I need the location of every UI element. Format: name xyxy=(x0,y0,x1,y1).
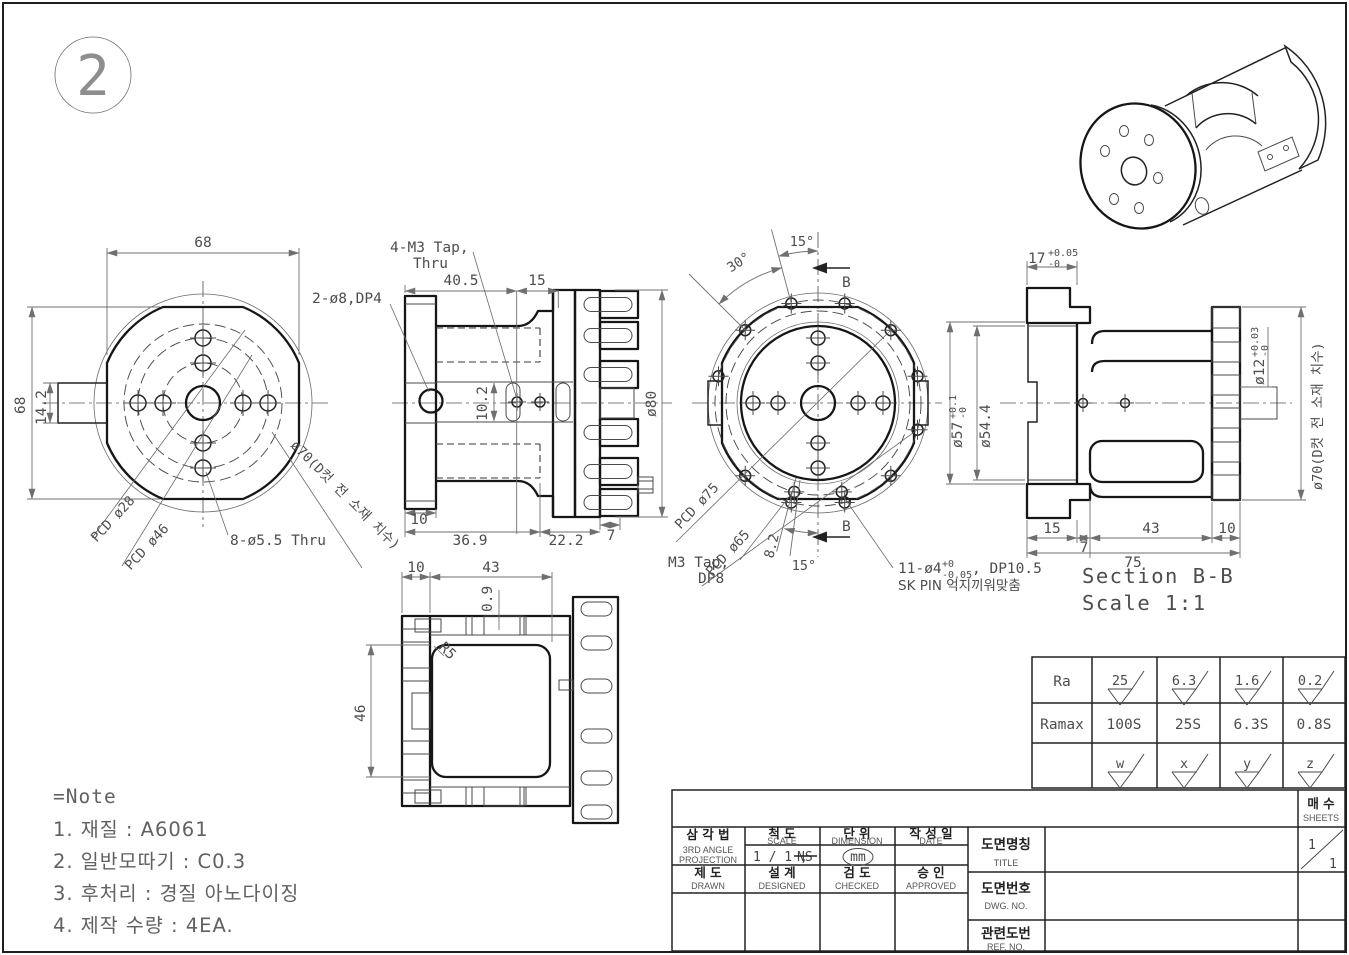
roughness-ra-label: Ra xyxy=(1053,674,1070,690)
tb-dwg-kr: 도면번호 xyxy=(981,880,1031,897)
dim-43-bv: 43 xyxy=(482,560,499,576)
tb-projection-en2: PROJECTION xyxy=(679,855,737,865)
label-pin-tol-up: +0 xyxy=(942,559,954,570)
dim-d12-group: ø12 +0.03 -0 xyxy=(1250,327,1271,387)
roughness-ramax-4: 0.8S xyxy=(1297,717,1332,733)
left-view: 68 68 14.2 PCD ø28 PCD ø46 8-ø5.5 Thru ø… xyxy=(13,235,403,574)
label-pcd75: PCD ø75 xyxy=(672,480,723,533)
roughness-ramax-3: 6.3S xyxy=(1234,717,1269,733)
front-view-labels: 2-ø8,DP4 4-M3 Tap, Thru xyxy=(312,240,516,396)
tb-unit-value: mm xyxy=(850,850,866,865)
dim-angle-30: 30° xyxy=(724,249,753,276)
dim-d12: ø12 xyxy=(1252,359,1268,385)
section-title: Section B-B xyxy=(1082,564,1234,588)
dim-d54-4: ø54.4 xyxy=(978,404,994,448)
label-r5: R5 xyxy=(435,640,459,664)
dim-10-bv: 10 xyxy=(407,560,424,576)
tb-scale-ns: NS xyxy=(797,850,813,865)
section-right-flange xyxy=(1212,307,1277,500)
roughness-symbol-grade-1: w xyxy=(1108,754,1144,788)
dim-0-9: 0.9 xyxy=(480,586,496,612)
label-4m3-line1: 4-M3 Tap, xyxy=(390,240,469,256)
note-item-1: 1. 재질 : A6061 xyxy=(53,818,209,841)
section-flange-hatch-top xyxy=(1027,288,1090,323)
front-view: 40.5 15 10.2 ø80 10 36.9 22.2 7 2-ø8,DP4… xyxy=(312,240,672,549)
roughness-symbol-ra-1: 25 xyxy=(1108,671,1144,705)
label-m3-tap: M3 Tap, xyxy=(668,555,729,571)
dim-17-tol-up: +0.05 xyxy=(1048,248,1078,259)
label-4m3-line2: Thru xyxy=(413,256,448,272)
roughness-symbol-ra-4: 0.2 xyxy=(1298,671,1334,705)
dim-angle-15-bottom: 15° xyxy=(792,558,816,574)
roughness-symbol-grade-4: z xyxy=(1298,754,1334,788)
dim-7: 7 xyxy=(1080,540,1089,556)
tb-approved-kr: 승 인 xyxy=(917,865,944,880)
balloon-number: 2 xyxy=(76,44,110,109)
title-block: 삼 각 법 3RD ANGLE PROJECTION 척 도 SCALE 1 /… xyxy=(672,790,1345,952)
svg-text:0.2: 0.2 xyxy=(1298,673,1322,689)
bottom-view-dimensions: 10 43 0.9 R5 46 xyxy=(353,560,552,777)
dim-angle-15-top: 15° xyxy=(790,234,814,250)
section-arrow-b-bottom: B xyxy=(842,519,851,535)
side-hole-d8 xyxy=(420,390,443,413)
svg-text:z: z xyxy=(1306,756,1314,772)
dim-36-9: 36.9 xyxy=(453,533,488,549)
dim-15: 15 xyxy=(1043,521,1060,537)
dim-8-2: 8.2 xyxy=(761,532,782,560)
label-pin-rest: , DP10.5 xyxy=(972,561,1042,577)
tb-designed-en: DESIGNED xyxy=(758,881,806,891)
svg-text:x: x xyxy=(1180,756,1188,772)
bottom-view: 10 43 0.9 R5 46 xyxy=(353,560,618,823)
dim-d57: ø57 xyxy=(950,422,966,448)
roughness-symbol-grade-3: y xyxy=(1235,754,1271,788)
section-body xyxy=(1074,307,1212,500)
dim-d80: ø80 xyxy=(644,391,660,417)
tb-projection-en1: 3RD ANGLE xyxy=(683,845,734,855)
dim-10-2: 10.2 xyxy=(475,386,491,421)
label-m3-dp8: DP8 xyxy=(698,571,724,587)
dim-68-left: 68 xyxy=(13,397,29,414)
dim-d12-dn: -0 xyxy=(1260,345,1271,357)
label-d70-section: ø70(D컷 전 소재 치수) xyxy=(1310,342,1326,490)
tb-sheets-kr: 매 수 xyxy=(1307,796,1335,811)
dim-d57-dn: -0 xyxy=(958,407,969,419)
section-arrow-b-top: B xyxy=(842,275,851,291)
tb-designed-kr: 설 계 xyxy=(768,865,795,880)
dim-15-top: 15 xyxy=(528,273,545,289)
dim-7: 7 xyxy=(607,528,616,544)
tb-sheets-bottom: 1 xyxy=(1329,857,1337,872)
cad-drawing-canvas: 2 68 68 14.2 PCD ø28 PCD ø46 8-ø xyxy=(0,0,1349,955)
right-view-labels: PCD ø75 PCD ø65 M3 Tap, DP8 11-ø4 +0 -0.… xyxy=(668,330,1042,594)
right-inner-holes xyxy=(741,326,895,502)
roughness-symbol-grade-2: x xyxy=(1172,754,1208,788)
roughness-symbol-ra-2: 6.3 xyxy=(1172,671,1208,705)
note-item-3: 3. 후처리 : 경질 아노다이징 xyxy=(53,882,299,905)
notes-title: =Note xyxy=(53,785,117,808)
dim-46: 46 xyxy=(353,705,369,722)
label-pin-line2: SK PIN 억지끼워맞춤 xyxy=(898,578,1021,594)
tb-checked-kr: 검 도 xyxy=(843,865,871,880)
roughness-ramax-2: 25S xyxy=(1175,717,1201,733)
svg-text:y: y xyxy=(1243,756,1251,772)
svg-text:1.6: 1.6 xyxy=(1235,673,1259,689)
tb-drawn-en: DRAWN xyxy=(691,881,725,891)
label-2-d8-dp4: 2-ø8,DP4 xyxy=(312,291,382,307)
tb-ref-kr: 관련도번 xyxy=(981,925,1031,942)
roughness-ramax-label: Ramax xyxy=(1040,717,1084,733)
tb-sheets-top: 1 xyxy=(1308,838,1316,853)
drawing-sheet: 2 68 68 14.2 PCD ø28 PCD ø46 8-ø xyxy=(0,0,1349,955)
label-pcd28: PCD ø28 xyxy=(88,493,139,546)
front-right-flange xyxy=(575,290,653,517)
iso-face-holes xyxy=(1101,126,1163,214)
dim-10: 10 xyxy=(1218,521,1235,537)
tb-title-kr: 도면명칭 xyxy=(981,836,1031,853)
balloon-2: 2 xyxy=(55,37,131,113)
section-dimensions: 17 +0.05 -0 ø57 +0.1 -0 ø54.4 ø12 +0.03 … xyxy=(946,248,1326,571)
label-pin-main: 11-ø4 xyxy=(898,561,942,577)
tb-drawn-kr: 제 도 xyxy=(694,865,722,880)
label-8-d55-thru: 8-ø5.5 Thru xyxy=(230,533,326,549)
svg-text:w: w xyxy=(1116,756,1125,772)
dim-17-tol-dn: -0 xyxy=(1048,259,1060,270)
dim-68-top: 68 xyxy=(194,235,211,251)
dim-17: 17 xyxy=(1028,251,1045,267)
tb-date-en: DATE xyxy=(919,836,942,846)
roughness-table: Ra Ramax 25 6.3 1.6 0.2 100S 25S 6.3S 0.… xyxy=(1032,657,1345,788)
bottom-left-flange xyxy=(402,616,430,806)
roughness-symbol-ra-3: 1.6 xyxy=(1235,671,1271,705)
tb-scale-en: SCALE xyxy=(767,836,797,846)
tb-unit-en: DIMENSION xyxy=(831,836,882,846)
dim-10-bottom: 10 xyxy=(410,512,427,528)
tb-title-en: TITLE xyxy=(994,858,1019,868)
bottom-right-flange xyxy=(559,597,618,823)
notes-block: =Note 1. 재질 : A6061 2. 일반모따기 : C0.3 3. 후… xyxy=(53,785,299,937)
note-item-4: 4. 제작 수량 : 4EA. xyxy=(53,914,234,937)
section-view: 17 +0.05 -0 ø57 +0.1 -0 ø54.4 ø12 +0.03 … xyxy=(946,248,1326,615)
tb-dwg-en: DWG. NO. xyxy=(985,901,1028,911)
section-flange-hatch-bottom xyxy=(1027,484,1090,518)
dim-40-5: 40.5 xyxy=(444,273,479,289)
note-item-2: 2. 일반모따기 : C0.3 xyxy=(53,850,246,873)
dim-14-2: 14.2 xyxy=(34,390,50,425)
svg-text:25: 25 xyxy=(1112,673,1128,689)
sheet-border xyxy=(3,3,1346,952)
tb-checked-en: CHECKED xyxy=(835,881,880,891)
tb-sheets-en: SHEETS xyxy=(1303,813,1339,823)
section-scale: Scale 1:1 xyxy=(1082,591,1207,615)
dim-22-2: 22.2 xyxy=(549,533,584,549)
svg-text:6.3: 6.3 xyxy=(1172,673,1196,689)
left-view-dimensions: 68 68 14.2 xyxy=(13,235,299,499)
tb-ref-en: REF. NO. xyxy=(987,942,1025,952)
tb-approved-en: APPROVED xyxy=(906,881,957,891)
tb-projection-kr: 삼 각 법 xyxy=(686,827,729,842)
dim-43: 43 xyxy=(1142,521,1159,537)
isometric-view xyxy=(1065,46,1326,243)
dim-d57-group: ø57 +0.1 -0 xyxy=(948,395,969,448)
label-pcd46: PCD ø46 xyxy=(122,521,173,574)
right-view-centerlines xyxy=(692,232,942,557)
roughness-ramax-1: 100S xyxy=(1107,717,1142,733)
